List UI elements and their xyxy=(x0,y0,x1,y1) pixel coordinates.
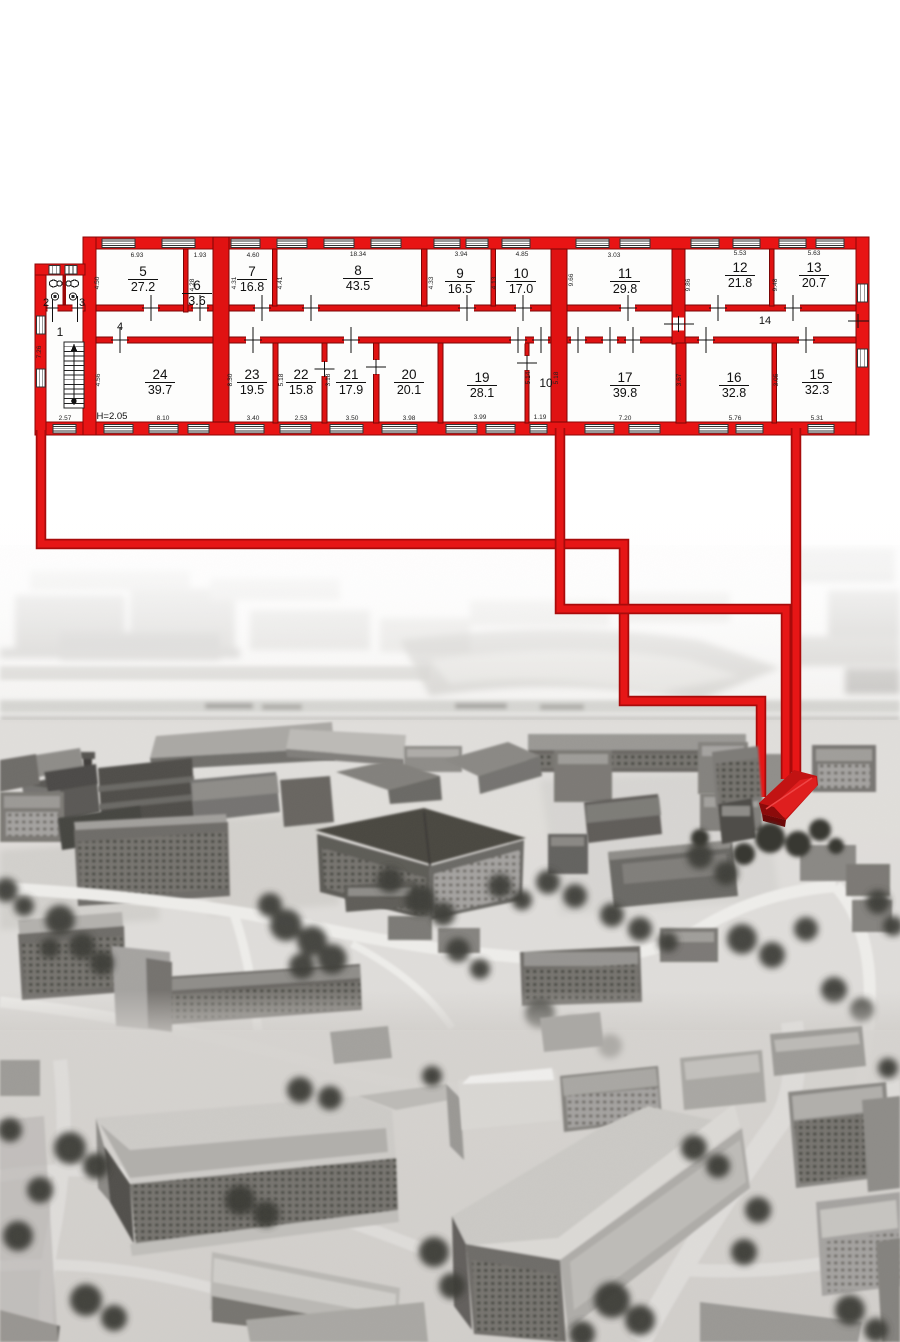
svg-text:43.5: 43.5 xyxy=(346,279,370,293)
svg-text:20: 20 xyxy=(401,367,416,382)
svg-text:5.18: 5.18 xyxy=(278,373,285,386)
svg-text:5.31: 5.31 xyxy=(811,415,824,422)
svg-text:22: 22 xyxy=(293,367,308,382)
svg-text:8.10: 8.10 xyxy=(157,415,170,422)
svg-text:16: 16 xyxy=(726,370,741,385)
svg-text:19.5: 19.5 xyxy=(240,383,264,397)
svg-text:17.9: 17.9 xyxy=(339,383,363,397)
svg-text:39.8: 39.8 xyxy=(613,386,637,400)
svg-text:16.5: 16.5 xyxy=(448,282,472,296)
svg-text:21.8: 21.8 xyxy=(728,276,752,290)
svg-text:10: 10 xyxy=(539,376,553,390)
svg-text:9.48: 9.48 xyxy=(772,278,779,291)
svg-text:15.8: 15.8 xyxy=(289,383,313,397)
svg-text:15: 15 xyxy=(809,367,824,382)
svg-text:6.93: 6.93 xyxy=(131,252,144,259)
svg-text:4.60: 4.60 xyxy=(247,252,260,259)
svg-text:1: 1 xyxy=(57,325,64,339)
svg-text:4.41: 4.41 xyxy=(277,276,284,289)
svg-text:4.13: 4.13 xyxy=(491,276,498,289)
svg-text:3.67: 3.67 xyxy=(676,373,683,386)
svg-text:4: 4 xyxy=(117,321,123,333)
svg-text:8: 8 xyxy=(354,263,362,278)
svg-text:3: 3 xyxy=(79,297,85,309)
svg-text:24: 24 xyxy=(152,367,168,382)
svg-text:32.3: 32.3 xyxy=(805,383,829,397)
svg-text:3.6: 3.6 xyxy=(188,294,205,308)
svg-text:39.7: 39.7 xyxy=(148,383,172,397)
svg-text:4.33: 4.33 xyxy=(428,276,435,289)
svg-text:17.0: 17.0 xyxy=(509,282,533,296)
svg-text:1.93: 1.93 xyxy=(194,252,207,259)
svg-text:16.8: 16.8 xyxy=(240,280,264,294)
svg-text:14: 14 xyxy=(759,315,771,327)
svg-text:H=2.05: H=2.05 xyxy=(97,411,128,422)
svg-text:5.18: 5.18 xyxy=(553,371,560,384)
svg-text:3.18: 3.18 xyxy=(325,373,332,386)
svg-text:4.50: 4.50 xyxy=(94,276,101,289)
svg-text:3.05: 3.05 xyxy=(773,373,780,386)
svg-text:3.98: 3.98 xyxy=(403,415,416,422)
svg-text:4.56: 4.56 xyxy=(95,373,102,386)
svg-text:20.7: 20.7 xyxy=(802,276,826,290)
svg-text:2.53: 2.53 xyxy=(295,415,308,422)
svg-text:17: 17 xyxy=(617,370,632,385)
svg-text:3.40: 3.40 xyxy=(247,415,260,422)
svg-text:5.14: 5.14 xyxy=(525,371,532,384)
svg-text:23: 23 xyxy=(244,367,259,382)
svg-text:8.30: 8.30 xyxy=(227,373,234,386)
svg-text:3.50: 3.50 xyxy=(346,415,359,422)
svg-text:7.20: 7.20 xyxy=(619,415,632,422)
svg-text:7: 7 xyxy=(248,264,256,279)
svg-text:9: 9 xyxy=(456,266,464,281)
svg-text:9.86: 9.86 xyxy=(685,278,692,291)
svg-text:4.85: 4.85 xyxy=(516,251,529,258)
svg-text:4.31: 4.31 xyxy=(231,276,238,289)
svg-text:4.28: 4.28 xyxy=(189,278,196,291)
svg-text:32.8: 32.8 xyxy=(722,386,746,400)
svg-text:10: 10 xyxy=(513,266,528,281)
svg-text:21: 21 xyxy=(343,367,358,382)
svg-text:5.53: 5.53 xyxy=(734,250,747,257)
svg-text:3.99: 3.99 xyxy=(474,414,487,421)
svg-text:18.34: 18.34 xyxy=(350,251,367,258)
svg-text:5.76: 5.76 xyxy=(729,415,742,422)
svg-text:9.66: 9.66 xyxy=(568,273,575,286)
svg-text:27.2: 27.2 xyxy=(131,280,155,294)
svg-text:19: 19 xyxy=(474,370,489,385)
svg-text:29.8: 29.8 xyxy=(613,282,637,296)
svg-text:11: 11 xyxy=(618,266,632,281)
svg-text:3.03: 3.03 xyxy=(608,252,621,259)
svg-text:5.63: 5.63 xyxy=(808,250,821,257)
svg-text:7.26: 7.26 xyxy=(36,345,43,358)
svg-text:20.1: 20.1 xyxy=(397,383,421,397)
svg-text:12: 12 xyxy=(732,260,747,275)
svg-text:13: 13 xyxy=(806,260,821,275)
svg-text:2: 2 xyxy=(43,297,49,309)
svg-text:1.19: 1.19 xyxy=(534,414,547,421)
svg-text:28.1: 28.1 xyxy=(470,386,494,400)
svg-text:2.57: 2.57 xyxy=(59,415,72,422)
svg-text:5: 5 xyxy=(139,264,147,279)
svg-text:3.94: 3.94 xyxy=(455,251,468,258)
